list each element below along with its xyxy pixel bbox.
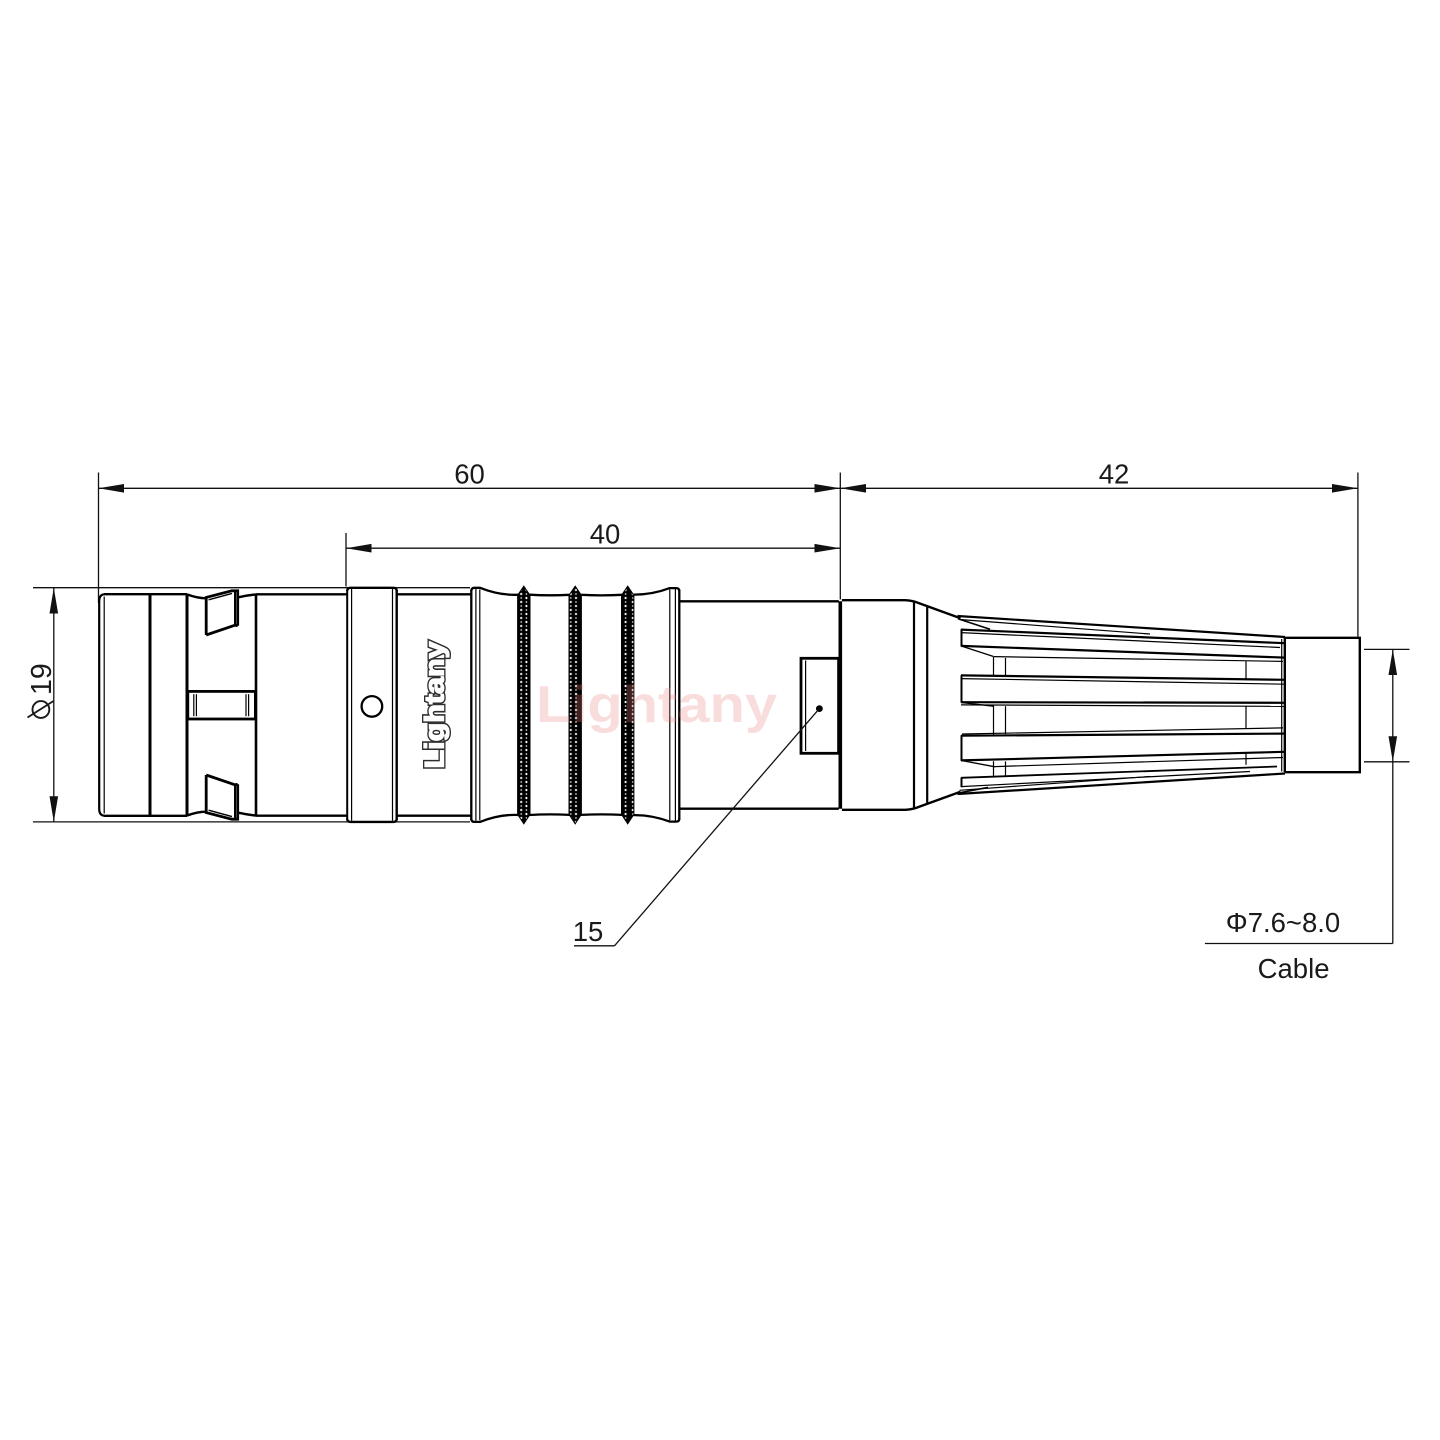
svg-text:42: 42 (1099, 459, 1130, 490)
svg-text:Lightany: Lightany (536, 676, 777, 734)
svg-text:19: 19 (26, 663, 58, 695)
svg-text:Lightany: Lightany (420, 642, 450, 769)
svg-text:60: 60 (454, 459, 485, 490)
svg-text:Φ7.6~8.0: Φ7.6~8.0 (1226, 907, 1340, 938)
svg-text:Cable: Cable (1258, 953, 1330, 984)
svg-text:40: 40 (590, 519, 621, 550)
svg-text:15: 15 (573, 916, 604, 947)
